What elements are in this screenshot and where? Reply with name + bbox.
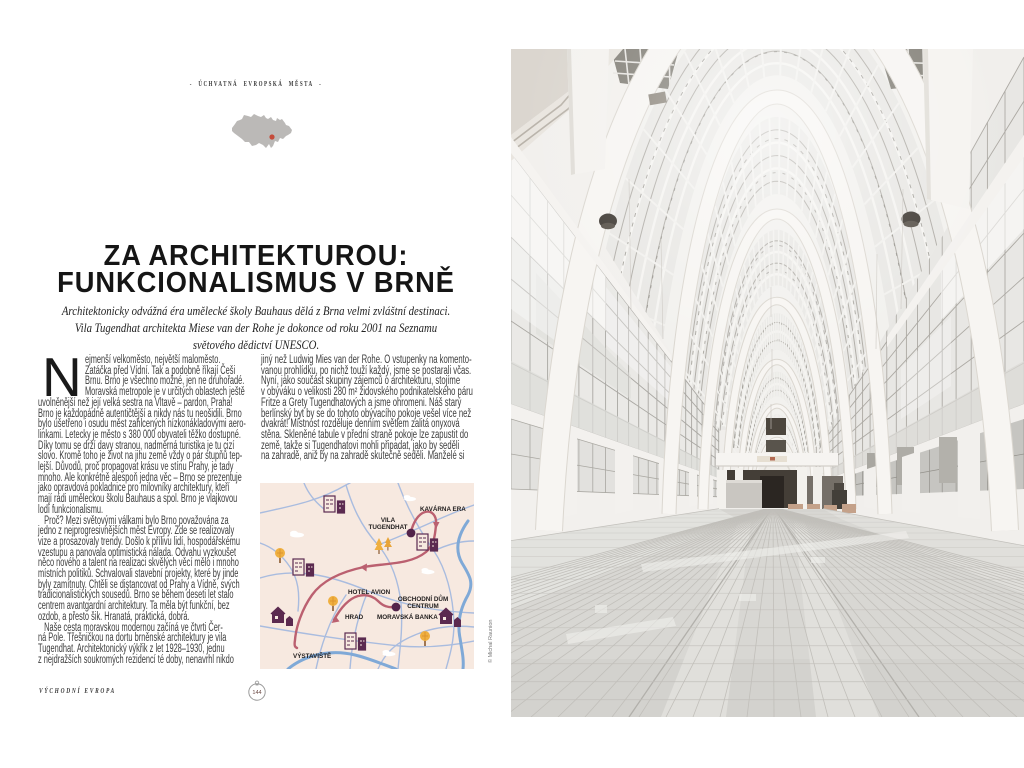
svg-text:144: 144 [252,690,261,696]
svg-text:HRAD: HRAD [345,614,364,621]
svg-text:CENTRUM: CENTRUM [407,603,438,610]
svg-text:VÝSTAVIŠTĚ: VÝSTAVIŠTĚ [293,651,331,660]
svg-text:TUGENDHAT: TUGENDHAT [368,524,407,531]
svg-text:HOTEL AVION: HOTEL AVION [348,589,391,596]
svg-text:MORAVSKÁ BANKA: MORAVSKÁ BANKA [377,612,438,621]
svg-text:KAVÁRNA ERA: KAVÁRNA ERA [420,504,466,513]
svg-text:VILA: VILA [381,517,396,524]
